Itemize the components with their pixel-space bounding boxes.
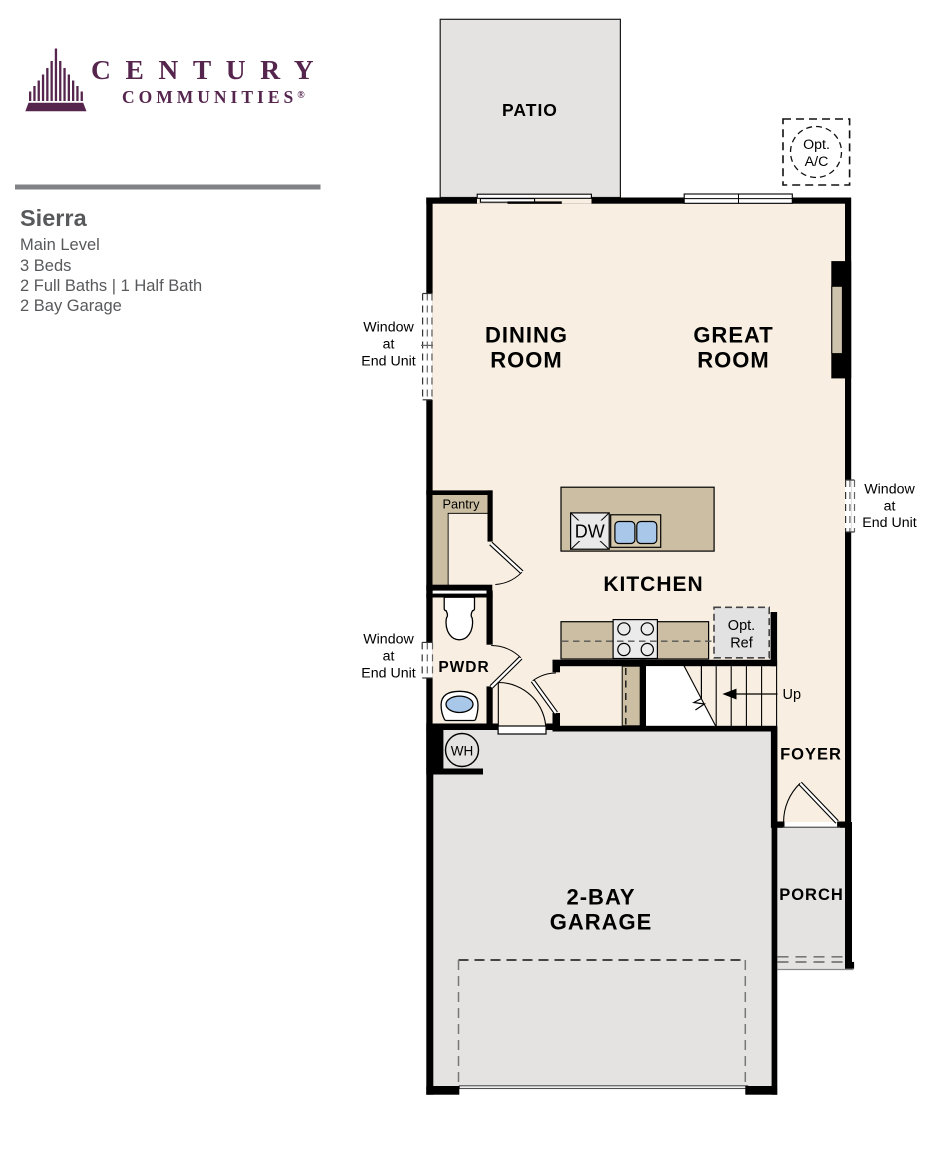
svg-text:Sierra: Sierra: [20, 205, 88, 231]
svg-text:Main Level: Main Level: [20, 236, 100, 254]
svg-text:at: at: [383, 337, 395, 353]
svg-text:ROOM: ROOM: [697, 347, 769, 372]
svg-text:2-BAY: 2-BAY: [567, 885, 636, 910]
svg-text:Window: Window: [864, 482, 915, 498]
svg-text:at: at: [383, 649, 395, 665]
svg-text:PATIO: PATIO: [502, 100, 558, 120]
svg-text:Opt.: Opt.: [803, 137, 830, 153]
svg-text:GARAGE: GARAGE: [550, 910, 653, 935]
svg-text:at: at: [884, 499, 896, 515]
svg-text:Opt.: Opt.: [728, 618, 755, 634]
svg-text:PORCH: PORCH: [779, 886, 844, 904]
svg-text:2 Bay Garage: 2 Bay Garage: [20, 297, 122, 315]
svg-text:Window: Window: [363, 320, 414, 336]
svg-text:Up: Up: [783, 687, 802, 703]
svg-text:DW: DW: [575, 522, 605, 542]
svg-text:End Unit: End Unit: [361, 666, 415, 682]
svg-text:KITCHEN: KITCHEN: [603, 573, 703, 596]
svg-text:FOYER: FOYER: [780, 746, 842, 764]
svg-text:2 Full Baths | 1 Half Bath: 2 Full Baths | 1 Half Bath: [20, 277, 202, 295]
svg-text:End Unit: End Unit: [862, 515, 916, 531]
svg-text:WH: WH: [451, 744, 474, 759]
svg-text:End Unit: End Unit: [361, 354, 415, 370]
svg-text:ROOM: ROOM: [490, 347, 562, 372]
svg-text:PWDR: PWDR: [438, 659, 489, 676]
svg-text:GREAT: GREAT: [693, 322, 773, 347]
svg-text:Window: Window: [363, 632, 414, 648]
svg-text:3 Beds: 3 Beds: [20, 257, 71, 275]
svg-text:CENTURY: CENTURY: [91, 54, 328, 85]
svg-text:Pantry: Pantry: [443, 497, 481, 512]
svg-text:COMMUNITIES®: COMMUNITIES®: [122, 87, 309, 107]
svg-text:A/C: A/C: [805, 154, 829, 170]
svg-text:Ref: Ref: [730, 636, 754, 652]
svg-text:DINING: DINING: [485, 322, 568, 347]
